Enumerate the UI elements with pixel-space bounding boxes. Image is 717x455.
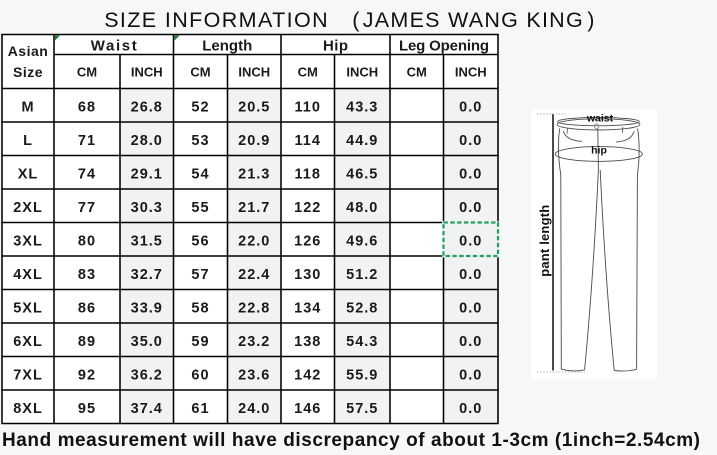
svg-text:37.4: 37.4 xyxy=(131,401,163,417)
svg-text:95: 95 xyxy=(78,401,96,417)
svg-text:Hand measurement will have dis: Hand measurement will have discrepancy o… xyxy=(2,430,700,451)
svg-text:48.0: 48.0 xyxy=(346,200,378,216)
svg-text:7XL: 7XL xyxy=(13,367,43,383)
svg-text:0.0: 0.0 xyxy=(459,200,482,216)
svg-text:waist: waist xyxy=(586,112,614,124)
svg-text:32.7: 32.7 xyxy=(131,267,163,283)
svg-text:57: 57 xyxy=(191,267,209,283)
svg-text:Hip: Hip xyxy=(323,38,348,55)
svg-text:36.2: 36.2 xyxy=(131,367,163,383)
svg-text:0.0: 0.0 xyxy=(459,99,482,115)
svg-text:61: 61 xyxy=(191,401,209,417)
svg-text:68: 68 xyxy=(78,99,96,115)
svg-text:58: 58 xyxy=(191,300,209,316)
svg-text:20.5: 20.5 xyxy=(238,99,270,115)
svg-text:35.0: 35.0 xyxy=(131,334,163,350)
svg-text:0.0: 0.0 xyxy=(459,133,482,149)
svg-text:49.6: 49.6 xyxy=(346,233,378,249)
svg-text:0.0: 0.0 xyxy=(459,233,482,249)
svg-text:4XL: 4XL xyxy=(13,267,43,283)
svg-text:74: 74 xyxy=(78,166,96,182)
svg-text:23.2: 23.2 xyxy=(238,334,270,350)
svg-text:23.6: 23.6 xyxy=(238,367,270,383)
svg-text:30.3: 30.3 xyxy=(131,200,163,216)
svg-text:54: 54 xyxy=(191,166,209,182)
svg-text:JAMES WANG KING: JAMES WANG KING xyxy=(363,8,583,32)
svg-text:): ) xyxy=(587,8,594,32)
svg-text:5XL: 5XL xyxy=(13,300,43,316)
svg-text:29.1: 29.1 xyxy=(131,166,163,182)
svg-text:59: 59 xyxy=(191,334,209,350)
svg-text:2XL: 2XL xyxy=(13,200,43,216)
svg-text:86: 86 xyxy=(78,300,96,316)
svg-text:26.8: 26.8 xyxy=(131,99,163,115)
svg-text:43.3: 43.3 xyxy=(346,99,378,115)
svg-text:0.0: 0.0 xyxy=(459,166,482,182)
svg-text:CM: CM xyxy=(298,65,318,80)
svg-text:55: 55 xyxy=(191,200,209,216)
svg-text:92: 92 xyxy=(78,367,96,383)
svg-text:L: L xyxy=(23,133,33,149)
svg-text:M: M xyxy=(21,99,34,115)
svg-text:53: 53 xyxy=(191,133,209,149)
svg-text:pant length: pant length xyxy=(537,205,552,277)
svg-text:8XL: 8XL xyxy=(13,401,43,417)
svg-text:33.9: 33.9 xyxy=(131,300,163,316)
svg-text:3XL: 3XL xyxy=(13,233,43,249)
svg-text:XL: XL xyxy=(18,166,39,182)
svg-text:89: 89 xyxy=(78,334,96,350)
svg-text:52: 52 xyxy=(191,99,209,115)
svg-text:142: 142 xyxy=(294,367,321,383)
svg-text:31.5: 31.5 xyxy=(131,233,163,249)
svg-text:46.5: 46.5 xyxy=(346,166,378,182)
svg-text:51.2: 51.2 xyxy=(346,267,378,283)
svg-text:130: 130 xyxy=(294,267,321,283)
svg-text:21.3: 21.3 xyxy=(238,166,270,182)
svg-text:0.0: 0.0 xyxy=(459,300,482,316)
svg-text:110: 110 xyxy=(295,99,321,115)
svg-text:CM: CM xyxy=(407,65,427,80)
svg-text:114: 114 xyxy=(295,133,321,149)
svg-text:Waist: Waist xyxy=(91,38,137,55)
svg-text:138: 138 xyxy=(294,334,321,350)
svg-text:22.0: 22.0 xyxy=(238,233,270,249)
svg-text:54.3: 54.3 xyxy=(346,334,378,350)
svg-text:INCH: INCH xyxy=(346,65,378,80)
svg-text:52.8: 52.8 xyxy=(346,300,378,316)
svg-text:Leg Opening: Leg Opening xyxy=(399,38,489,55)
svg-text:83: 83 xyxy=(78,267,96,283)
svg-text:60: 60 xyxy=(191,367,209,383)
svg-text:SIZE INFORMATION: SIZE INFORMATION xyxy=(104,8,327,32)
svg-text:22.4: 22.4 xyxy=(238,267,270,283)
svg-text:Asian: Asian xyxy=(8,43,49,59)
svg-text:Size: Size xyxy=(13,64,43,80)
svg-text:22.8: 22.8 xyxy=(238,300,270,316)
svg-text:146: 146 xyxy=(294,401,321,417)
svg-text:INCH: INCH xyxy=(238,65,270,80)
svg-text:INCH: INCH xyxy=(131,65,163,80)
svg-text:57.5: 57.5 xyxy=(346,401,378,417)
svg-text:20.9: 20.9 xyxy=(238,133,270,149)
svg-text:55.9: 55.9 xyxy=(346,367,378,383)
svg-text:CM: CM xyxy=(190,65,210,80)
svg-text:126: 126 xyxy=(294,233,321,249)
svg-text:44.9: 44.9 xyxy=(346,133,378,149)
svg-text:21.7: 21.7 xyxy=(238,200,270,216)
svg-text:28.0: 28.0 xyxy=(131,133,163,149)
svg-text:0.0: 0.0 xyxy=(459,401,482,417)
svg-text:(: ( xyxy=(352,8,360,32)
svg-text:77: 77 xyxy=(78,200,96,216)
svg-text:hip: hip xyxy=(591,144,607,156)
svg-text:118: 118 xyxy=(295,166,321,182)
svg-text:122: 122 xyxy=(294,200,321,216)
svg-text:0.0: 0.0 xyxy=(459,334,482,350)
svg-text:134: 134 xyxy=(294,300,321,316)
svg-text:71: 71 xyxy=(78,133,96,149)
svg-text:0.0: 0.0 xyxy=(459,267,482,283)
svg-text:56: 56 xyxy=(191,233,209,249)
svg-text:0.0: 0.0 xyxy=(459,367,482,383)
svg-text:Length: Length xyxy=(202,38,252,55)
svg-text:80: 80 xyxy=(78,233,96,249)
svg-text:6XL: 6XL xyxy=(13,334,43,350)
svg-text:INCH: INCH xyxy=(455,65,487,80)
svg-text:24.0: 24.0 xyxy=(238,401,270,417)
svg-text:CM: CM xyxy=(77,65,97,80)
